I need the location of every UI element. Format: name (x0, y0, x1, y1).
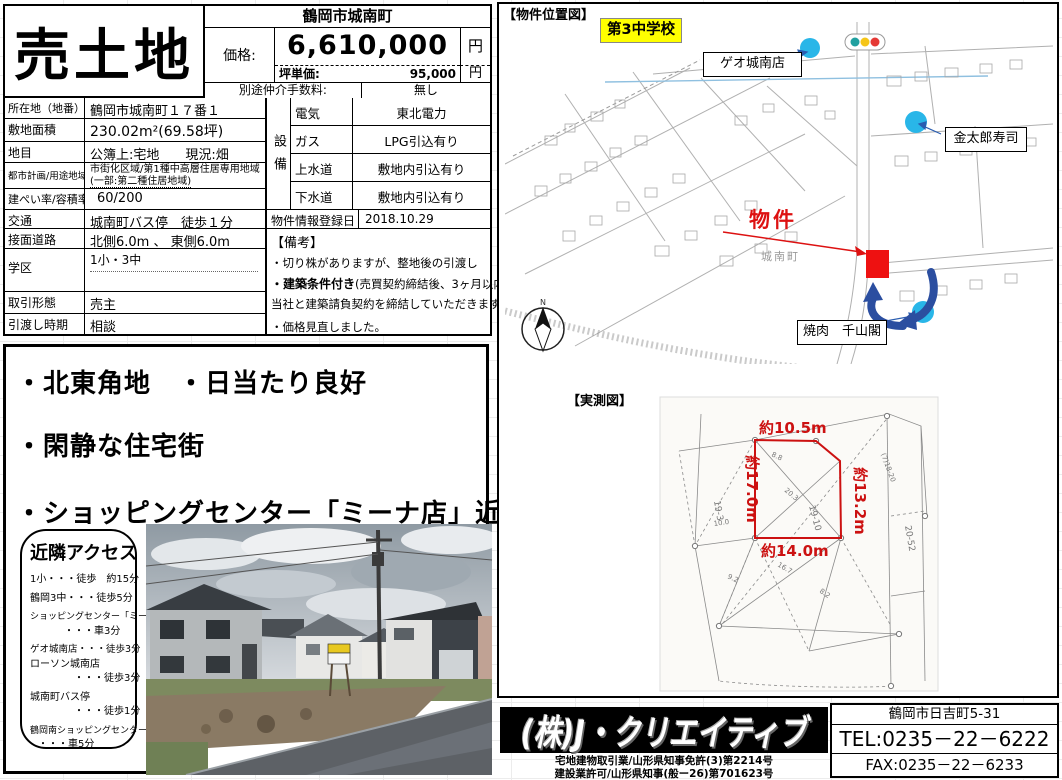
detail-label: 建ぺい率/容積率 (5, 189, 85, 210)
detail-value: 北側6.0m 、 東側6.0m (85, 229, 265, 249)
property-marker (723, 232, 889, 278)
utilities-header: 設備 (267, 98, 291, 210)
detail-value: 60/200 (85, 189, 265, 210)
map-label-sushi: 金太郎寿司 (945, 127, 1027, 152)
fee-label: 別途仲介手数料: (205, 83, 362, 98)
price-grid: 価格: 6,610,000 円 坪単価: 95,000 円 (205, 28, 490, 82)
traffic-light-icon (845, 34, 885, 50)
detail-label: 都市計画/用途地域 (5, 163, 85, 189)
tsubo-value: 95,000 (410, 66, 456, 82)
detail-value: 1小・3中 (85, 249, 265, 292)
remark-line: ・切り株がありますが、整地後の引渡し (271, 253, 488, 274)
access-line: ゲオ城南店・・・徒歩3分 (30, 643, 129, 658)
detail-label: 敷地面積 (5, 119, 85, 142)
map-label-district: 城南町 (761, 248, 800, 264)
map-label-property: 物件 (749, 204, 797, 234)
access-box: 近隣アクセス 1小・・・徒歩 約15分 鶴岡3中・・・徒歩5分 ショッピングセン… (20, 529, 137, 749)
access-title: 近隣アクセス (30, 539, 129, 565)
utility-label: 下水道 (291, 182, 353, 210)
access-line: ・・・徒歩1分 (30, 705, 129, 720)
company-name: (株)J・クリエイティブ (521, 705, 807, 756)
access-line: 鶴岡3中・・・徒歩5分 (30, 592, 129, 607)
survey-drawing: 10.0 20.3 8.8 16.7 9.2 19-3 19-10 20-52 … (659, 396, 939, 692)
feature-line: ・閑静な住宅街 (16, 426, 486, 463)
registration-label: 物件情報登録日 (267, 210, 359, 228)
contact-box: 鶴岡市日吉町5-31 TEL:0235－22－6222 FAX:0235－22－… (830, 703, 1059, 778)
detail-label: 引渡し時期 (5, 314, 85, 336)
measure-bottom: 約14.0m (761, 542, 829, 560)
tsubo-label: 坪単価: (279, 66, 320, 82)
map-label-geo: ゲオ城南店 (703, 52, 802, 77)
remarks-header: 【備考】 (267, 229, 490, 249)
access-line: ショッピングセンター「ミーナ」 (30, 610, 129, 625)
utility-label: ガス (291, 126, 353, 154)
price-value: 6,610,000 (275, 28, 460, 65)
utility-label: 電気 (291, 98, 353, 126)
detail-value: 230.02m²(69.58坪) (85, 119, 265, 142)
features-section: ・北東角地 ・日当たり良好 ・閑静な住宅街 ・ショッピングセンター「ミーナ店」近… (3, 344, 489, 774)
location-header: 鶴岡市城南町 (205, 6, 490, 28)
price-label: 価格: (205, 28, 275, 82)
remark-line: ・価格見直しました。 (271, 317, 488, 338)
company-fax: FAX:0235－22－6233 (832, 754, 1057, 776)
detail-value: 城南町バス停 徒歩１分 (85, 210, 265, 229)
license-line-2: 建設業許可/山形県知事(般ー26)第701623号 (500, 766, 828, 780)
utility-value: 敷地内引込有り (353, 182, 490, 210)
map-pointer-arrows (737, 50, 941, 330)
fee-row: 別途仲介手数料: 無し (205, 82, 490, 98)
access-line: 1小・・・徒歩 約15分 (30, 573, 129, 588)
detail-label: 取引形態 (5, 292, 85, 314)
page-title: 売土地 (5, 6, 205, 98)
map-label-school: 第3中学校 (600, 18, 682, 43)
detail-value: 公簿上:宅地 現況:畑 (85, 142, 265, 163)
utility-value: LPG引込有り (353, 126, 490, 154)
tsubo-unit: 円 (460, 65, 490, 82)
price-table: 鶴岡市城南町 価格: 6,610,000 円 坪単価: 95,000 円 別途仲… (205, 6, 490, 98)
detail-value: 売主 (85, 292, 265, 314)
access-line: 鶴岡南ショッピングセンター (30, 724, 129, 739)
utilities-remarks-column: 設備 電気 東北電力 ガス LPG引込有り 上水道 敷地内引込有り 下水道 敷地… (267, 98, 490, 334)
survey-section-title: 【実測図】 (565, 390, 634, 409)
map-label-yakiniku: 焼肉 千山閣 (797, 320, 887, 345)
access-line: ・・・徒歩3分 (30, 672, 129, 687)
remarks-text: ・切り株がありますが、整地後の引渡し ・建築条件付き(売買契約締結後、3ヶ月以内… (267, 249, 490, 337)
access-line: 城南町バス停 (30, 691, 129, 706)
photo-ground (146, 679, 492, 775)
feature-line: ・北東角地 ・日当たり良好 (16, 363, 486, 400)
flyer-page: 売土地 鶴岡市城南町 価格: 6,610,000 円 坪単価: 95,000 円… (0, 0, 1062, 780)
access-line: ・・・車3分 (30, 625, 129, 640)
access-line: ローソン城南店 (30, 658, 129, 673)
detail-label: 学区 (5, 249, 85, 292)
detail-label: 接面道路 (5, 229, 85, 249)
utility-label: 上水道 (291, 154, 353, 182)
price-unit: 円 (460, 28, 490, 65)
property-summary-table: 売土地 鶴岡市城南町 価格: 6,610,000 円 坪単価: 95,000 円… (3, 4, 492, 336)
utilities-table: 設備 電気 東北電力 ガス LPG引込有り 上水道 敷地内引込有り 下水道 敷地… (267, 98, 490, 210)
site-photo (146, 524, 492, 775)
measure-top: 約10.5m (759, 419, 827, 437)
company-address: 鶴岡市日吉町5-31 (832, 705, 1057, 725)
fee-value: 無し (362, 83, 490, 98)
detail-label: 地目 (5, 142, 85, 163)
detail-value: 市街化区域/第1種中高層住居専用地域 (一部:第二種住居地域) (85, 163, 265, 189)
map-survey-panel: 【物件位置図】 (497, 2, 1059, 698)
compass-icon: N (522, 298, 564, 351)
details-table: 所在地（地番） 鶴岡市城南町１７番１ 敷地面積 230.02m²(69.58坪)… (5, 98, 267, 334)
detail-label: 交通 (5, 210, 85, 229)
detail-value: 相談 (85, 314, 265, 336)
company-banner: (株)J・クリエイティブ (500, 707, 828, 753)
utility-value: 敷地内引込有り (353, 154, 490, 182)
tsubo-row: 坪単価: 95,000 (275, 65, 460, 82)
measure-left: 約17.0m (743, 455, 761, 523)
detail-label: 所在地（地番） (5, 98, 85, 119)
registration-row: 物件情報登録日 2018.10.29 (267, 210, 490, 229)
utility-value: 東北電力 (353, 98, 490, 126)
remark-line: ・建築条件付き(売買契約締結後、3ヶ月以内に (271, 274, 488, 295)
detail-value: 鶴岡市城南町１７番１ (85, 98, 265, 119)
measure-right: 約13.2m (851, 467, 869, 535)
access-line: ・・・車5分 (30, 738, 129, 753)
remark-line: 当社と建築請負契約を締結していただきます。) (271, 294, 488, 315)
compass-n-label: N (540, 298, 546, 307)
map-buildings (535, 60, 1036, 301)
registration-value: 2018.10.29 (359, 210, 490, 228)
company-tel: TEL:0235－22－6222 (832, 725, 1057, 754)
